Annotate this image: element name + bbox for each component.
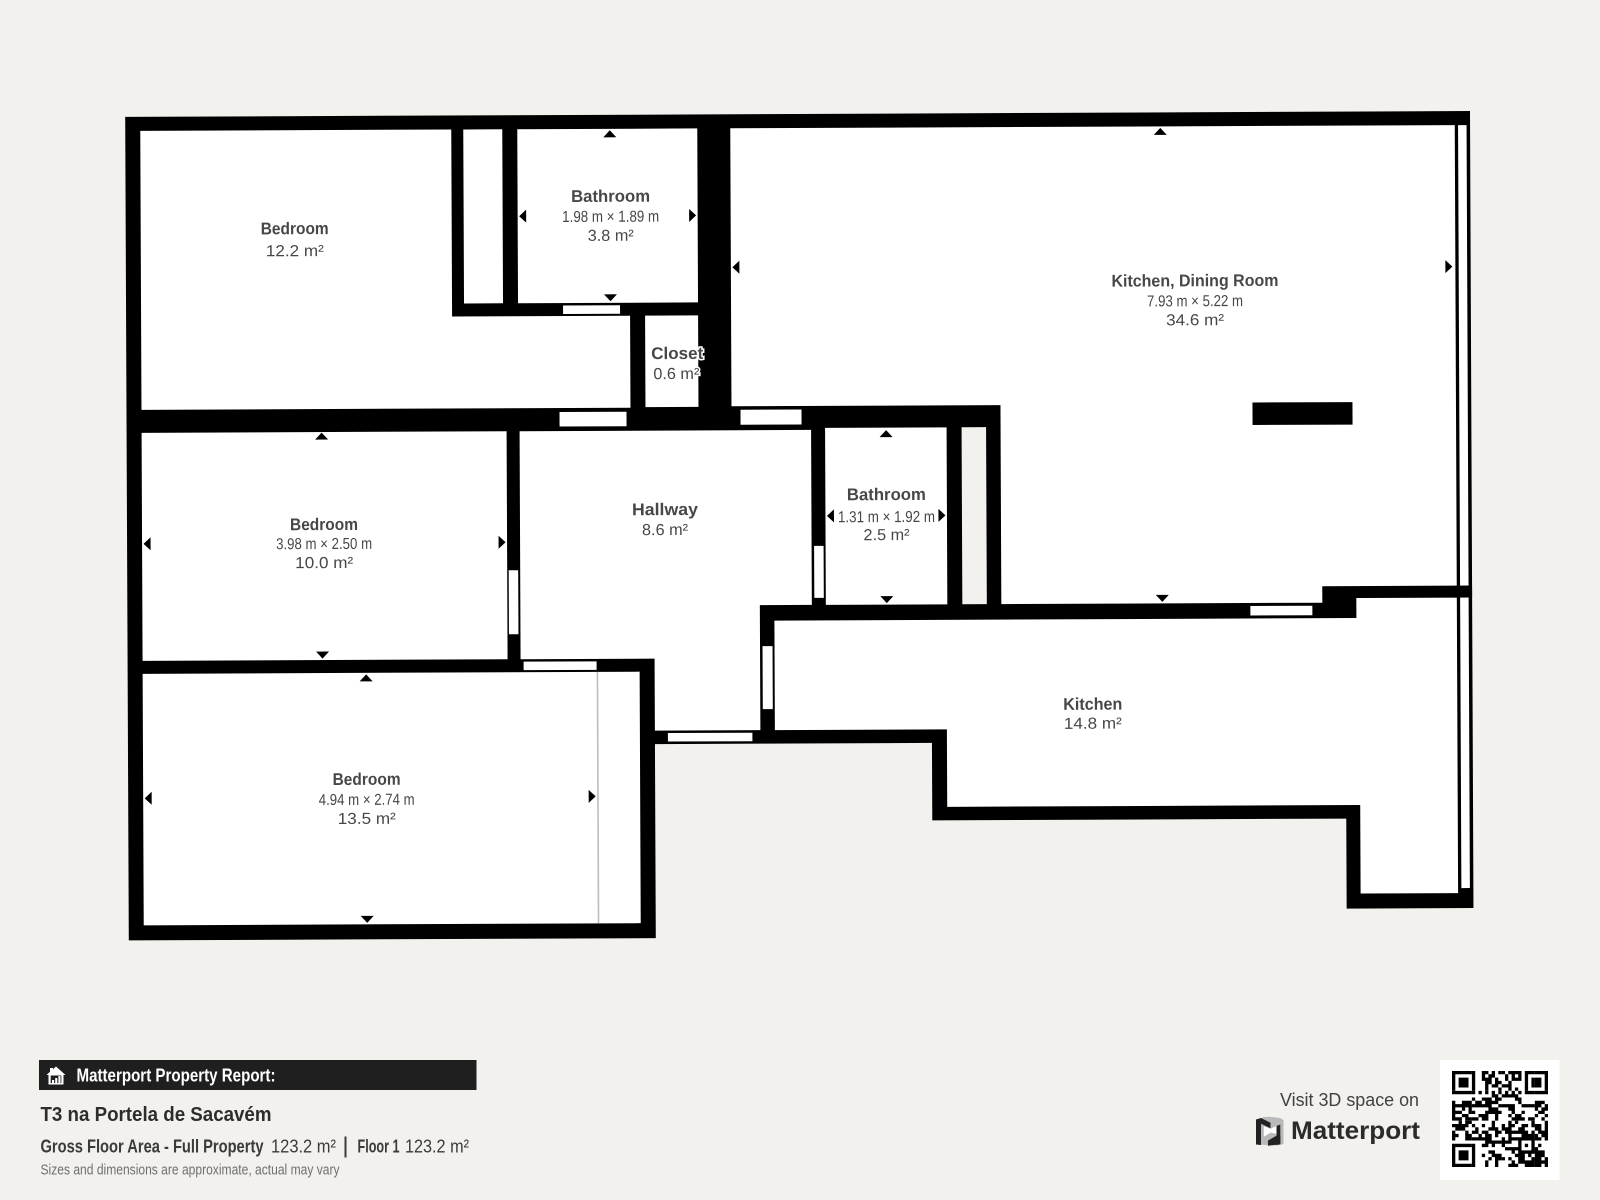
svg-text:Hallway: Hallway	[632, 500, 699, 519]
svg-text:Bedroom: Bedroom	[333, 770, 401, 789]
svg-text:3.8 m²: 3.8 m²	[588, 228, 635, 245]
svg-text:Bedroom: Bedroom	[290, 515, 358, 534]
svg-text:Bathroom: Bathroom	[847, 485, 926, 504]
svg-text:T3 na Portela de Sacavém: T3 na Portela de Sacavém	[41, 1103, 272, 1126]
svg-text:13.5 m²: 13.5 m²	[338, 811, 397, 828]
svg-text:1.31 m × 1.92 m: 1.31 m × 1.92 m	[838, 509, 935, 526]
svg-text:12.2 m²: 12.2 m²	[266, 243, 325, 260]
svg-text:10.0 m²: 10.0 m²	[295, 555, 354, 572]
svg-text:0.6 m²: 0.6 m²	[653, 366, 700, 383]
svg-text:8.6 m²: 8.6 m²	[642, 522, 689, 539]
svg-text:Bedroom: Bedroom	[261, 219, 329, 238]
svg-text:1.98 m × 1.89 m: 1.98 m × 1.89 m	[562, 209, 659, 226]
svg-text:123.2 m²: 123.2 m²	[405, 1136, 469, 1157]
svg-text:Floor 1: Floor 1	[358, 1136, 400, 1157]
svg-text:Matterport Property Report:: Matterport Property Report:	[77, 1066, 276, 1086]
svg-text:Kitchen, Dining Room: Kitchen, Dining Room	[1111, 271, 1278, 291]
svg-text:Kitchen: Kitchen	[1063, 695, 1122, 714]
svg-text:4.94 m × 2.74 m: 4.94 m × 2.74 m	[319, 792, 415, 809]
svg-text:2.5 m²: 2.5 m²	[864, 527, 911, 544]
svg-text:14.8 m²: 14.8 m²	[1064, 716, 1123, 733]
svg-text:7.93 m × 5.22 m: 7.93 m × 5.22 m	[1147, 293, 1243, 310]
svg-text:Visit 3D space on: Visit 3D space on	[1280, 1089, 1419, 1110]
svg-text:Gross Floor Area - Full Proper: Gross Floor Area - Full Property	[41, 1136, 265, 1157]
svg-text:Closet: Closet	[651, 344, 703, 363]
svg-text:Bathroom: Bathroom	[571, 187, 650, 206]
svg-text:3.98 m × 2.50 m: 3.98 m × 2.50 m	[276, 536, 372, 553]
svg-text:Sizes and dimensions are appro: Sizes and dimensions are approximate, ac…	[41, 1163, 341, 1179]
svg-text:123.2 m²: 123.2 m²	[271, 1136, 336, 1157]
svg-text:34.6 m²: 34.6 m²	[1166, 312, 1225, 329]
svg-text:Matterport: Matterport	[1291, 1117, 1421, 1145]
